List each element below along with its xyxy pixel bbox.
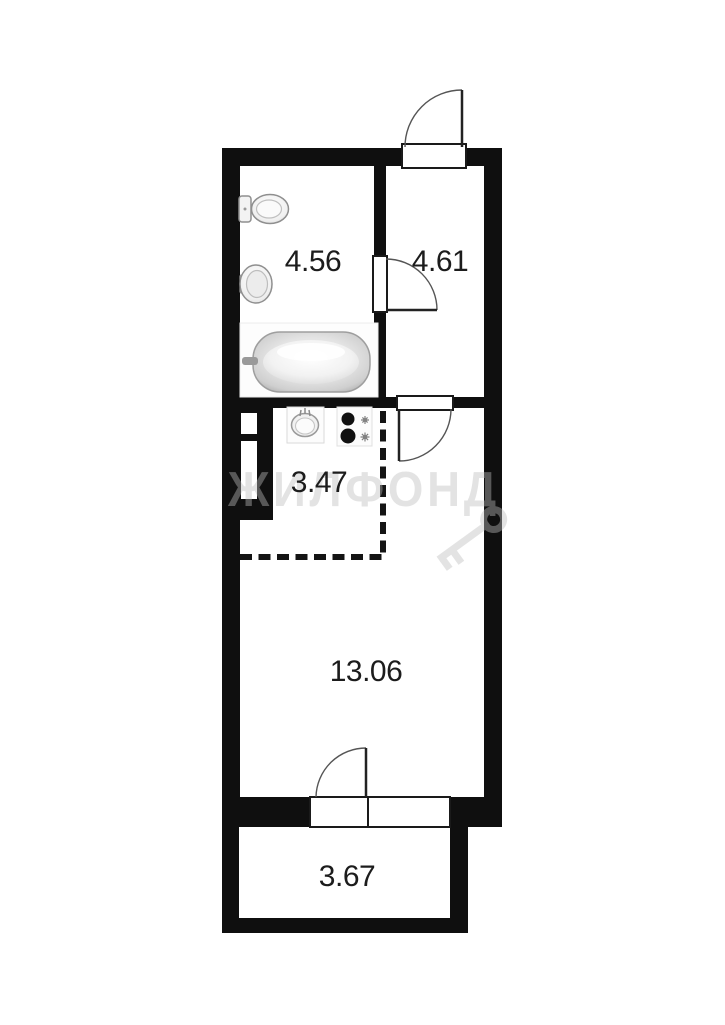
wall-bottom-left bbox=[222, 797, 310, 827]
room-area-label-living-room: 13.06 bbox=[330, 655, 403, 689]
toilet-icon bbox=[239, 195, 289, 224]
balcony-door-casing bbox=[310, 797, 368, 827]
wall-bottom-right bbox=[450, 797, 502, 827]
room-area-label-bathroom: 4.56 bbox=[285, 245, 341, 279]
kitchen-sink-icon bbox=[287, 407, 324, 443]
balcony-window bbox=[368, 797, 450, 827]
door-swing-arc bbox=[316, 748, 366, 797]
room-area-label-kitchen: 3.47 bbox=[291, 466, 347, 500]
wall-balcony-left bbox=[222, 827, 239, 933]
hallway-living-door bbox=[397, 396, 453, 461]
stove-icon bbox=[337, 407, 372, 446]
bathroom-door-casing bbox=[373, 256, 387, 312]
bathtub-faucet bbox=[242, 357, 258, 365]
hallway-living-door-casing bbox=[397, 396, 453, 410]
bathtub-icon bbox=[240, 323, 378, 397]
wall-mid-left bbox=[222, 397, 398, 408]
watermark-text: ЖИЛФОНД bbox=[227, 463, 500, 517]
entrance-door-casing bbox=[402, 144, 466, 168]
key-shaft bbox=[437, 520, 491, 562]
door-swing-arc bbox=[399, 409, 451, 461]
wall-mid-right bbox=[451, 397, 484, 408]
entrance-door bbox=[402, 90, 466, 168]
bathroom-sink-icon bbox=[240, 265, 272, 303]
room-area-label-hallway: 4.61 bbox=[412, 245, 468, 279]
vent-shaft-cavity-small bbox=[241, 413, 257, 434]
wall-balcony-bottom bbox=[222, 918, 468, 933]
balcony-door bbox=[310, 748, 368, 827]
room-area-label-balcony: 3.67 bbox=[319, 860, 375, 894]
floor-plan: ЖИЛФОНД 4.56 4.61 3.47 13.06 3.67 bbox=[0, 0, 725, 1025]
wall-bath-hall-upper bbox=[374, 166, 386, 257]
door-swing-arc bbox=[405, 90, 462, 147]
wall-top-left bbox=[222, 148, 402, 166]
wall-balcony-right bbox=[450, 827, 468, 933]
